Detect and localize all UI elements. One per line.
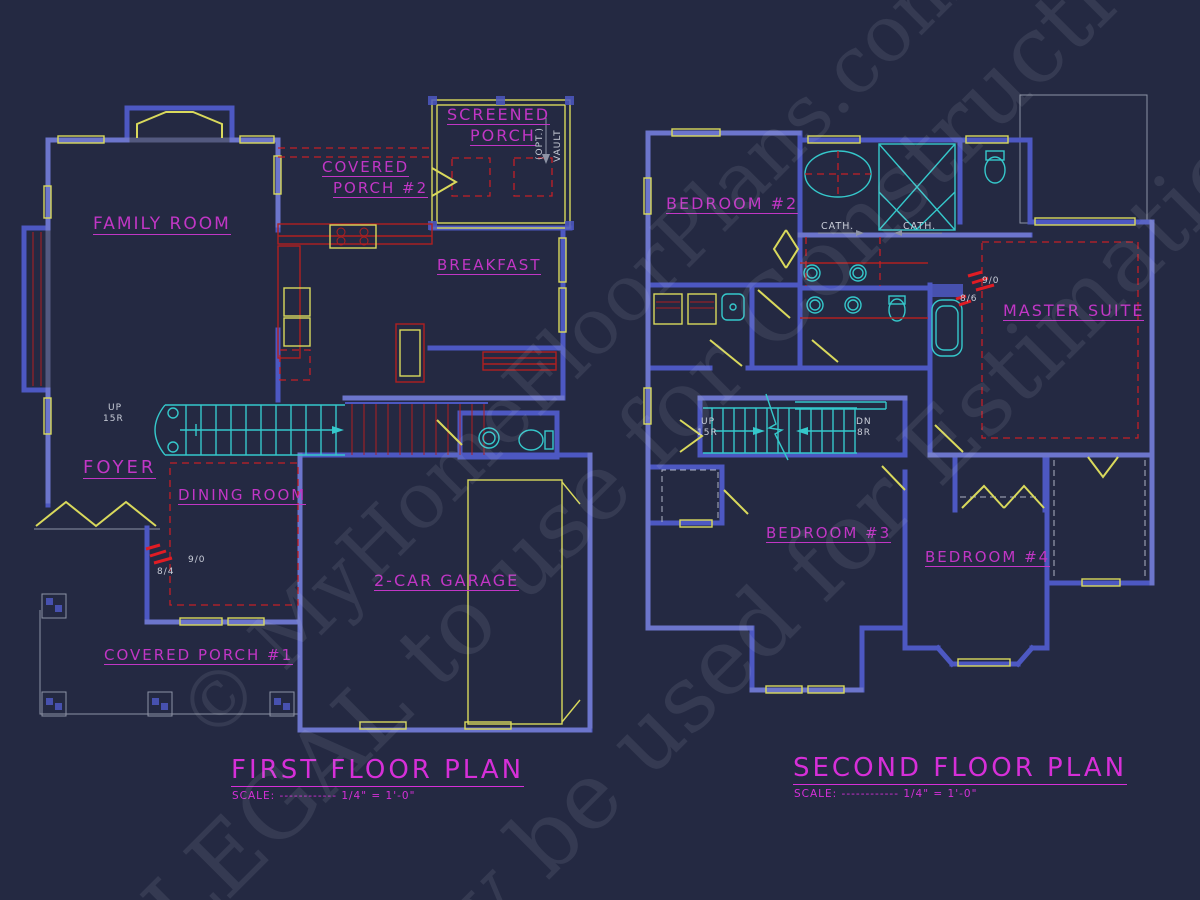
pantry-dashed — [280, 350, 310, 380]
dryer-icon — [688, 294, 716, 324]
stair-up-label-2: UP — [701, 418, 715, 427]
cabinet — [284, 318, 310, 346]
toilet-fixture — [519, 430, 543, 450]
porch-post — [42, 594, 66, 618]
garage-label: 2-CAR GARAGE — [374, 573, 519, 591]
front-door — [36, 502, 156, 526]
opt-label: (OPT.) — [536, 127, 545, 160]
ceiling-86-label: 8/6 — [960, 295, 977, 304]
first-floor-plan — [24, 96, 590, 730]
second-floor-title: SECOND FLOOR PLAN — [793, 755, 1127, 785]
laundry-sink — [722, 294, 744, 320]
vault-label: VAULT — [554, 129, 563, 162]
chimney-bay — [137, 112, 222, 138]
garage-interior — [468, 480, 580, 724]
master-tray-ceiling — [982, 242, 1138, 438]
stair-risers-label: 15R — [103, 415, 124, 424]
kitchen — [278, 224, 556, 382]
fireplace-niche — [33, 232, 41, 386]
covered-porch-1-label: COVERED PORCH #1 — [104, 648, 293, 665]
porch-post — [270, 692, 294, 716]
cabinet — [284, 288, 310, 316]
covered-porch-2-label-line1: COVERED — [322, 160, 409, 177]
ceiling-height-label: 9/0 — [188, 556, 205, 565]
door-height-hatch — [146, 545, 172, 563]
bedroom-2-label: BEDROOM #2 — [666, 196, 798, 214]
bedroom-3-label: BEDROOM #3 — [766, 526, 891, 543]
stair-up-label: UP — [108, 404, 122, 413]
toilet-fixture — [889, 296, 905, 321]
tub-fixture — [932, 300, 962, 356]
toilet-fixture — [985, 151, 1005, 183]
porch-post — [42, 692, 66, 716]
ceiling-90-label: 9/0 — [982, 277, 999, 286]
powder-room — [437, 420, 553, 450]
sink-fixture — [479, 428, 499, 448]
roof-below-outline — [1020, 95, 1147, 223]
cath-right-label: CATH. — [903, 222, 936, 232]
washer-icon — [654, 294, 682, 324]
bedroom-4-label: BEDROOM #4 — [925, 550, 1050, 567]
covered-porch-2-rooflines — [278, 148, 430, 157]
first-floor-scale: SCALE: ------------ 1/4" = 1'-0" — [232, 791, 415, 802]
shower-fixture — [879, 144, 955, 230]
stair-dn-label: DN — [856, 418, 872, 427]
cath-left-label: CATH. — [821, 222, 854, 232]
second-floor-doors — [680, 230, 1118, 514]
master-bath — [800, 144, 1005, 356]
laundry-room — [654, 294, 744, 324]
dining-ceiling-dashed — [170, 463, 298, 605]
second-floor-plan — [644, 95, 1152, 693]
breakfast-label: BREAKFAST — [437, 258, 541, 275]
second-floor-scale: SCALE: ------------ 1/4" = 1'-0" — [794, 789, 977, 800]
stairs-second-floor — [703, 394, 886, 460]
porch-post — [148, 692, 172, 716]
master-suite-label: MASTER SUITE — [1003, 303, 1144, 321]
door-size-label: 8/4 — [157, 568, 174, 577]
blueprint-canvas: FAMILY ROOM COVERED PORCH #2 SCREENED PO… — [0, 0, 1200, 900]
stair-dn-risers: 8R — [857, 429, 871, 438]
family-room-label: FAMILY ROOM — [93, 216, 231, 235]
screened-porch-label-line1: SCREENED — [447, 107, 550, 125]
stairs-first-floor — [155, 404, 484, 455]
screened-porch-label-line2: PORCH — [470, 128, 536, 146]
stair-up-risers-2: 15R — [697, 429, 718, 438]
dining-room-label: DINING ROOM — [178, 488, 306, 505]
first-floor-title: FIRST FLOOR PLAN — [231, 757, 524, 787]
foyer-label: FOYER — [83, 459, 156, 479]
hutch — [400, 330, 420, 376]
covered-porch-2-label-line2: PORCH #2 — [333, 181, 428, 198]
